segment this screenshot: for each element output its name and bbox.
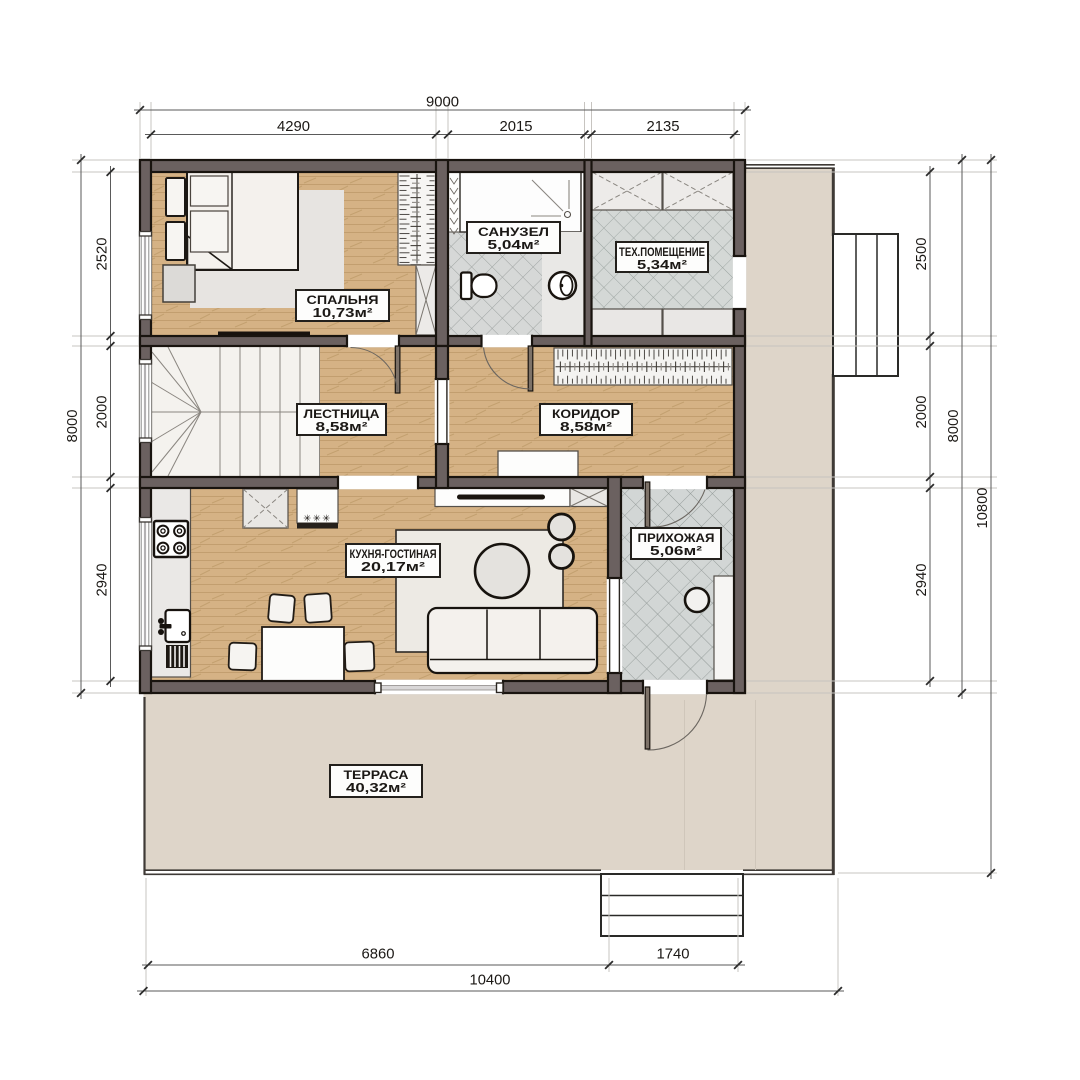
svg-text:ЛЕСТНИЦА: ЛЕСТНИЦА [304,407,380,421]
svg-text:2520: 2520 [95,238,111,271]
svg-text:10,73м²: 10,73м² [313,306,373,320]
svg-text:КУХНЯ-ГОСТИНАЯ: КУХНЯ-ГОСТИНАЯ [350,547,437,561]
svg-text:2500: 2500 [914,238,930,271]
svg-text:2000: 2000 [95,396,111,429]
svg-text:2940: 2940 [95,564,111,597]
svg-text:САНУЗЕЛ: САНУЗЕЛ [478,225,549,239]
svg-text:20,17м²: 20,17м² [361,560,425,574]
svg-text:8,58м²: 8,58м² [560,420,612,434]
svg-text:ТЕХ.ПОМЕЩЕНИЕ: ТЕХ.ПОМЕЩЕНИЕ [619,245,705,259]
svg-text:5,04м²: 5,04м² [488,238,540,252]
svg-text:ТЕРРАСА: ТЕРРАСА [344,768,409,782]
svg-text:2940: 2940 [914,564,930,597]
svg-text:8000: 8000 [946,410,962,443]
svg-text:2135: 2135 [647,119,680,135]
svg-text:8000: 8000 [65,410,81,443]
svg-text:СПАЛЬНЯ: СПАЛЬНЯ [307,293,379,307]
svg-text:2000: 2000 [914,396,930,429]
svg-text:9000: 9000 [426,95,459,111]
svg-text:1740: 1740 [657,947,690,963]
svg-text:40,32м²: 40,32м² [346,781,406,795]
svg-text:4290: 4290 [277,119,310,135]
svg-text:10400: 10400 [470,973,511,989]
svg-text:КОРИДОР: КОРИДОР [552,407,620,421]
svg-text:10800: 10800 [975,488,991,529]
svg-text:5,06м²: 5,06м² [650,544,702,558]
svg-text:5,34м²: 5,34м² [637,258,687,272]
svg-text:6860: 6860 [362,947,395,963]
svg-text:✳✳✳: ✳✳✳ [303,514,331,525]
svg-text:ПРИХОЖАЯ: ПРИХОЖАЯ [638,531,715,545]
svg-text:2015: 2015 [500,119,533,135]
svg-text:8,58м²: 8,58м² [316,420,368,434]
